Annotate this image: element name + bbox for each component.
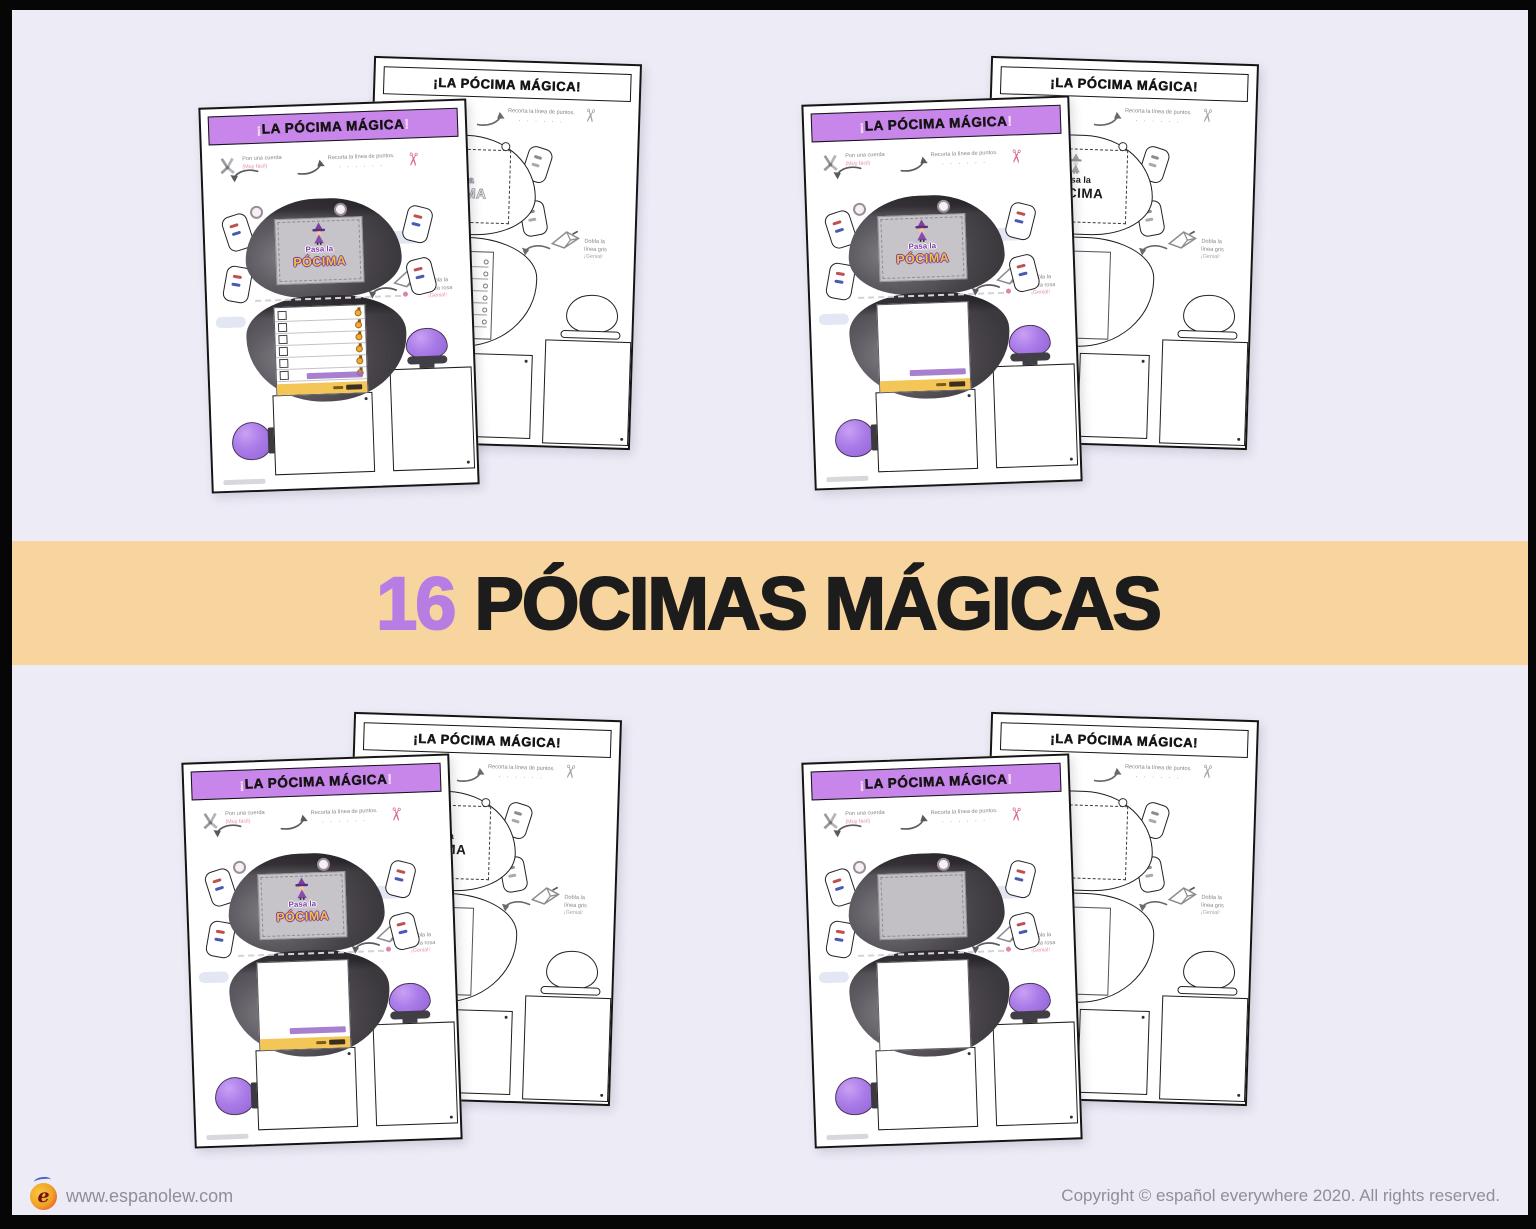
potion-base [407, 355, 447, 364]
cutout-box [542, 339, 631, 446]
fold-marker [1006, 947, 1011, 952]
paper-tab [1007, 253, 1041, 294]
paper-tab [384, 859, 418, 900]
fold-paper-icon [1167, 230, 1198, 251]
scissors-icon: ✂ [386, 806, 405, 822]
worksheet-front: ¡LA PÓCIMA MÁGICA! Pon una cuerda (Muy f… [801, 95, 1082, 490]
paper-tab [401, 204, 435, 245]
fold-instruction: Dobla la línea gris ¡Genial! [1201, 895, 1240, 919]
cauldron-label-area: Pasa la PÓCIMA [877, 871, 967, 940]
arrow-icon [831, 820, 863, 842]
potion-base-outline [1177, 986, 1237, 996]
footer: e www.espanolew.com Copyright © español … [30, 1176, 1500, 1216]
potion-outline [1183, 950, 1236, 990]
fold-paper-icon [1167, 886, 1198, 907]
worksheet-front: ¡LA PÓCIMA MÁGICA! Pon una cuerda (Muy f… [801, 753, 1082, 1148]
cut-instruction: Recorta la línea de puntos. · · · · · · [301, 808, 388, 828]
cutout-box [255, 1047, 358, 1130]
small-caption [290, 1026, 346, 1034]
cutout-box [875, 1047, 978, 1130]
scissors-icon: ✂ [403, 151, 422, 167]
cutout-box [373, 1021, 459, 1126]
worksheet-title: ¡LA PÓCIMA MÁGICA! [383, 66, 632, 102]
potion-bottle-sideways [231, 421, 272, 460]
cutout-box [1077, 1009, 1150, 1095]
fold-marker [386, 947, 391, 952]
scissors-icon: ✂ [1197, 763, 1217, 780]
hole-grommet [855, 205, 864, 214]
credit-strip [880, 378, 970, 392]
fold-instruction: Dobla la línea gris ¡Genial! [1201, 239, 1240, 263]
writing-panel [876, 301, 971, 393]
potion-outline [1183, 294, 1236, 334]
arrow-icon [228, 165, 260, 187]
potion-bottle-sideways [834, 1076, 875, 1115]
credit-strip [277, 381, 367, 395]
website-url: www.espanolew.com [66, 1186, 233, 1207]
credit-strip [260, 1036, 350, 1050]
watermark [826, 1134, 868, 1140]
fold-instruction: Dobla la línea gris ¡Genial! [584, 239, 623, 263]
scissors-icon: ✂ [560, 763, 580, 780]
cauldron-label-line2: PÓCIMA [896, 251, 949, 267]
cauldron-label-line2: PÓCIMA [293, 254, 346, 270]
cut-instruction: Recorta la línea de puntos. · · · · · · [921, 150, 1008, 170]
potion-base-outline [540, 986, 600, 996]
scissors-icon: ✂ [580, 107, 600, 124]
potion-base-outline [560, 330, 620, 340]
cauldron-label-area: Pasa la PÓCIMA [257, 871, 347, 940]
fold-paper-icon [550, 230, 581, 251]
worksheet-front: ¡LA PÓCIMA MÁGICA! Pon una cuerda (Muy f… [181, 753, 462, 1148]
cutout-box [993, 363, 1079, 468]
cutout-box [1159, 339, 1248, 446]
cauldron-label-area: Pasa la PÓCIMA [877, 213, 967, 282]
page: ¡LA PÓCIMA MÁGICA! Recorta la línea de p… [0, 0, 1536, 1229]
watermark [206, 1134, 248, 1140]
cloud-decoration [819, 971, 849, 983]
fold-instruction: Dobla la línea gris ¡Genial! [564, 895, 603, 919]
watermark [223, 479, 265, 485]
worksheet-title: ¡LA PÓCIMA MÁGICA! [191, 763, 442, 801]
scissors-icon: ✂ [1006, 148, 1025, 164]
cut-instruction: Recorta la línea de puntos. · · · · · · [921, 808, 1008, 828]
product-count: 16 [376, 561, 454, 646]
product-banner: 16 PÓCIMAS MÁGICAS [0, 541, 1536, 665]
potion-outline [546, 950, 599, 990]
cutout-box [390, 366, 476, 471]
cutout-box [522, 995, 611, 1102]
arrow-icon [211, 820, 243, 842]
cauldron-label-line2: PÓCIMA [276, 909, 329, 925]
fold-paper-icon [530, 886, 561, 907]
cut-instruction: Recorta la línea de puntos. · · · · · · [1115, 108, 1201, 128]
writing-panel [876, 959, 971, 1051]
cutout-box [272, 392, 375, 475]
potion-base-outline [1177, 330, 1237, 340]
product-title: PÓCIMAS MÁGICAS [474, 561, 1159, 646]
potion-bottle-sideways [214, 1076, 255, 1115]
worksheet-title: ¡LA PÓCIMA MÁGICA! [811, 763, 1062, 801]
witch-icon [291, 876, 312, 901]
cutout-box [993, 1021, 1079, 1126]
cloud-decoration [216, 316, 246, 328]
small-caption [910, 368, 966, 376]
potion-outline [566, 294, 619, 334]
cut-instruction: Recorta la línea de puntos. · · · · · · [498, 108, 584, 128]
hole-grommet [252, 208, 261, 217]
scissors-icon: ✂ [1197, 107, 1217, 124]
cauldron-label-area: Pasa la PÓCIMA [274, 216, 364, 285]
hole-grommet [855, 863, 864, 872]
worksheet-title: ¡LA PÓCIMA MÁGICA! [1000, 722, 1249, 758]
potion-base [1010, 1010, 1050, 1019]
worksheet-title: ¡LA PÓCIMA MÁGICA! [363, 722, 612, 758]
paper-tab [387, 911, 421, 952]
cloud-decoration [199, 971, 229, 983]
worksheet-title: ¡LA PÓCIMA MÁGICA! [811, 105, 1062, 143]
scissors-icon: ✂ [1006, 806, 1025, 822]
worksheet-title: ¡LA PÓCIMA MÁGICA! [208, 108, 459, 146]
paper-tab [404, 256, 438, 297]
arrow-icon [831, 162, 863, 184]
potion-bottle-sideways [834, 418, 875, 457]
fold-marker [403, 292, 408, 297]
fold-marker [1006, 289, 1011, 294]
writing-panel [256, 959, 351, 1051]
cutout-box [1077, 353, 1150, 439]
cut-instruction: Recorta la línea de puntos. · · · · · · [1115, 764, 1201, 784]
worksheet-front: ¡LA PÓCIMA MÁGICA! Pon una cuerda (Muy f… [198, 98, 479, 493]
copyright-text: Copyright © español everywhere 2020. All… [1061, 1186, 1500, 1206]
espanol-everywhere-logo-icon: e [30, 1183, 57, 1210]
cloud-decoration [819, 313, 849, 325]
cutout-box [1159, 995, 1248, 1102]
paper-tab [1004, 201, 1038, 242]
witch-icon [308, 221, 329, 246]
cut-instruction: Recorta la línea de puntos. · · · · · · [478, 764, 564, 784]
cut-instruction: Recorta la línea de puntos. · · · · · · [318, 153, 405, 173]
cutout-box [875, 389, 978, 472]
paper-tab [1004, 859, 1038, 900]
potion-base [390, 1010, 430, 1019]
website-link: e www.espanolew.com [30, 1183, 233, 1210]
witch-icon [911, 218, 932, 243]
hole-grommet [235, 863, 244, 872]
watermark [826, 476, 868, 482]
potion-base [1010, 352, 1050, 361]
writing-panel [273, 304, 368, 396]
paper-tab [1007, 911, 1041, 952]
